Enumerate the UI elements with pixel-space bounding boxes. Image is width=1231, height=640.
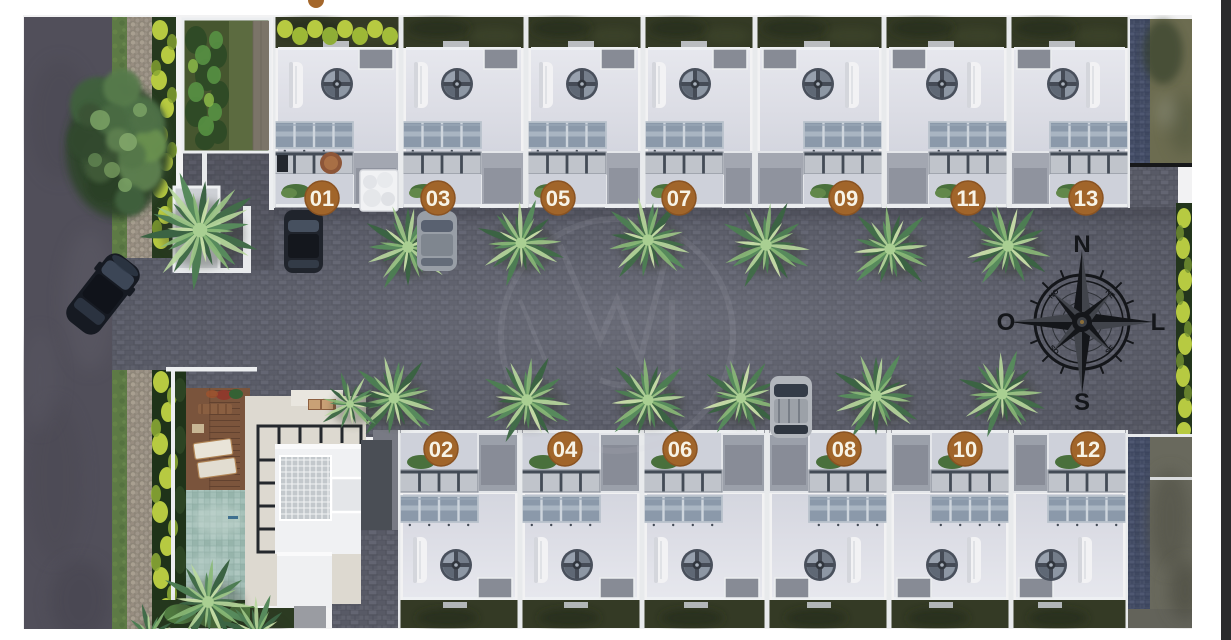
svg-text:S: S — [1074, 389, 1090, 416]
svg-text:02: 02 — [429, 437, 453, 462]
svg-text:03: 03 — [426, 186, 450, 211]
svg-text:O: O — [997, 309, 1016, 336]
svg-text:13: 13 — [1074, 186, 1098, 211]
svg-text:11: 11 — [956, 186, 979, 211]
svg-text:L: L — [1151, 309, 1166, 336]
svg-text:12: 12 — [1076, 437, 1100, 462]
svg-text:07: 07 — [667, 186, 691, 211]
svg-text:06: 06 — [668, 437, 692, 462]
svg-text:10: 10 — [953, 437, 977, 462]
svg-text:01: 01 — [310, 186, 334, 211]
svg-text:09: 09 — [834, 186, 858, 211]
svg-text:04: 04 — [553, 437, 578, 462]
svg-text:N: N — [1073, 231, 1090, 258]
svg-text:05: 05 — [546, 186, 570, 211]
svg-text:08: 08 — [832, 437, 856, 462]
